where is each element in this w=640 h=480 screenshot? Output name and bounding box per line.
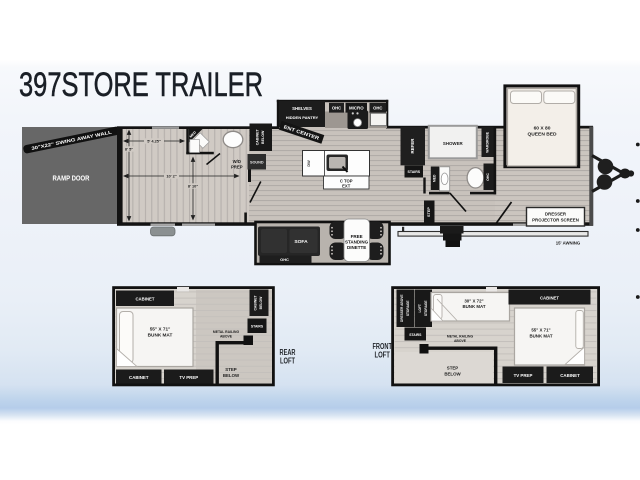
svg-text:CABINET: CABINET	[560, 373, 580, 378]
svg-text:LOFT: LOFT	[280, 357, 295, 366]
svg-text:55" X 71": 55" X 71"	[531, 328, 550, 333]
svg-text:SOFA: SOFA	[294, 239, 308, 245]
svg-text:BUNK MAT: BUNK MAT	[462, 304, 485, 309]
svg-text:STEP: STEP	[225, 367, 237, 372]
svg-text:STEP: STEP	[427, 207, 431, 217]
svg-text:DRESSER: DRESSER	[545, 212, 567, 217]
svg-text:CABINET: CABINET	[540, 295, 559, 300]
svg-text:STANDING: STANDING	[345, 240, 369, 245]
svg-text:15' AWNING: 15' AWNING	[556, 241, 581, 246]
svg-text:BUNK MAT: BUNK MAT	[529, 334, 552, 339]
svg-text:SHELVES: SHELVES	[292, 106, 312, 111]
svg-text:BELOW: BELOW	[259, 296, 263, 309]
svg-text:10' 2": 10' 2"	[166, 174, 176, 179]
svg-text:MICRO: MICRO	[349, 106, 364, 111]
svg-text:OHC: OHC	[486, 173, 490, 181]
svg-text:TV PREP: TV PREP	[179, 375, 198, 380]
svg-text:OHC: OHC	[332, 106, 341, 111]
svg-text:W/D: W/D	[233, 159, 241, 164]
svg-text:METAL RAILING: METAL RAILING	[213, 330, 240, 334]
svg-text:CABINET: CABINET	[135, 296, 154, 301]
svg-text:METAL RAILING: METAL RAILING	[447, 335, 474, 339]
svg-text:WARDROBE: WARDROBE	[486, 131, 490, 152]
svg-text:5' 4.25": 5' 4.25"	[147, 139, 161, 144]
svg-text:DRESSER ABOVE: DRESSER ABOVE	[400, 295, 404, 323]
svg-text:BUNK MAT: BUNK MAT	[148, 333, 173, 338]
svg-text:OHC: OHC	[373, 106, 382, 111]
svg-text:SHOWER: SHOWER	[443, 141, 464, 146]
svg-text:ABOVE: ABOVE	[220, 335, 233, 339]
svg-text:STAIRS: STAIRS	[409, 333, 422, 337]
svg-text:TV PREP: TV PREP	[514, 373, 533, 378]
svg-text:CABINET: CABINET	[254, 295, 258, 311]
svg-text:DW: DW	[307, 160, 311, 167]
svg-text:BELOW: BELOW	[261, 130, 265, 144]
svg-text:STAIRS: STAIRS	[251, 325, 264, 329]
svg-text:STORAGE: STORAGE	[406, 300, 410, 316]
svg-text:RAMP DOOR: RAMP DOOR	[53, 176, 90, 183]
svg-text:60 X 80: 60 X 80	[534, 126, 551, 132]
svg-text:ABOVE: ABOVE	[454, 339, 467, 343]
svg-text:397STORE TRAILER: 397STORE TRAILER	[19, 66, 263, 104]
svg-text:STEP: STEP	[447, 366, 459, 371]
svg-text:PROJECTOR SCREEN: PROJECTOR SCREEN	[532, 218, 579, 223]
svg-text:QUEEN BED: QUEEN BED	[527, 132, 557, 138]
svg-text:PREP: PREP	[231, 164, 243, 169]
svg-text:SOUND: SOUND	[250, 161, 264, 165]
svg-text:MED: MED	[433, 174, 437, 182]
svg-text:REFER: REFER	[410, 138, 415, 154]
svg-text:FREE: FREE	[351, 234, 363, 239]
svg-text:8' 10": 8' 10"	[188, 184, 198, 189]
svg-text:CABINET: CABINET	[129, 375, 149, 380]
svg-text:55" X 71": 55" X 71"	[150, 327, 171, 332]
svg-text:DINETTE: DINETTE	[347, 245, 366, 250]
svg-text:OHC: OHC	[280, 257, 289, 262]
svg-text:EXT: EXT	[342, 184, 351, 189]
svg-text:CABINET: CABINET	[256, 129, 260, 146]
svg-text:STORAGE: STORAGE	[424, 300, 428, 316]
svg-text:30" X 72": 30" X 72"	[464, 299, 483, 304]
svg-text:STAIRS: STAIRS	[408, 170, 421, 174]
svg-text:BELOW: BELOW	[444, 371, 461, 376]
svg-text:8' 5": 8' 5"	[125, 147, 133, 152]
svg-text:BELOW: BELOW	[223, 373, 240, 378]
svg-text:LOFT: LOFT	[418, 304, 422, 312]
svg-text:LOFT: LOFT	[374, 351, 390, 360]
svg-text:HIDDEN PANTRY: HIDDEN PANTRY	[286, 115, 319, 120]
